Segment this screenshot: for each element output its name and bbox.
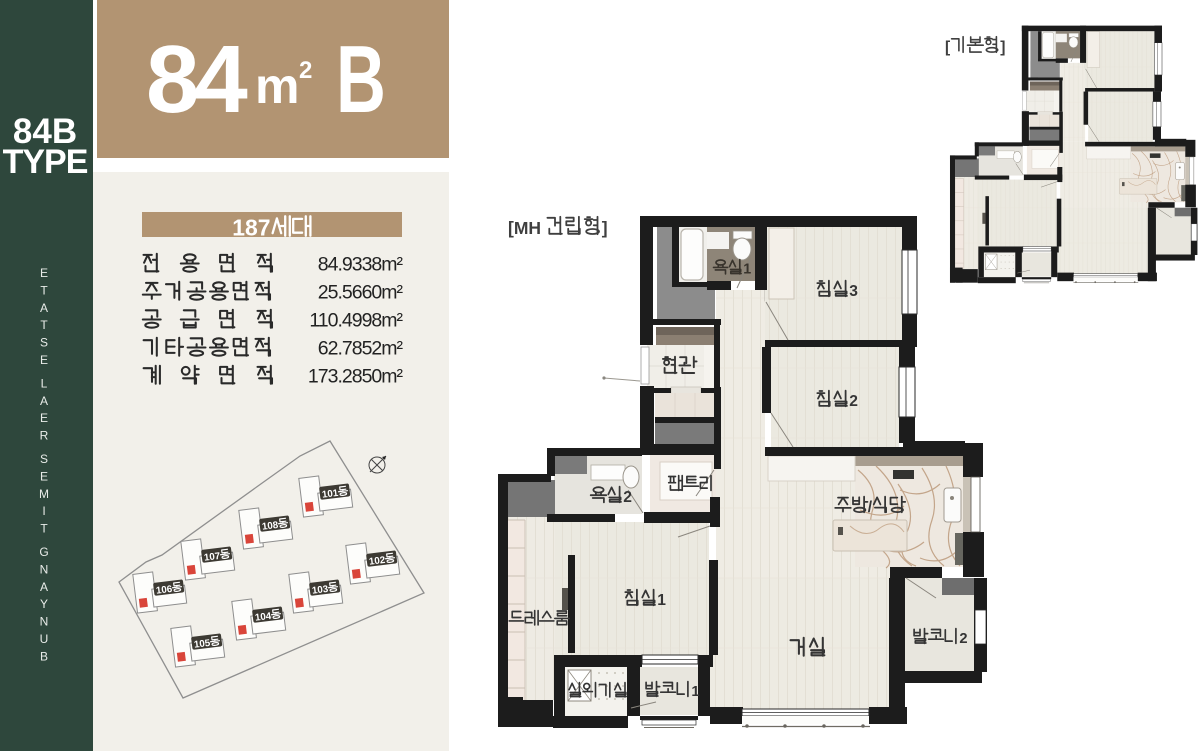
svg-text:/: / [868, 499, 873, 516]
svg-text:TYPE: TYPE [3, 143, 88, 181]
svg-text:N: N [40, 562, 49, 576]
svg-text:B: B [336, 25, 386, 133]
svg-text:A: A [40, 580, 48, 594]
svg-text:1: 1 [657, 592, 666, 609]
svg-text:A: A [40, 394, 48, 408]
svg-text:]: ] [602, 218, 608, 238]
svg-text:T: T [40, 522, 48, 536]
svg-text:107: 107 [203, 551, 221, 564]
svg-text:Y: Y [40, 597, 48, 611]
svg-text:M: M [39, 487, 49, 501]
svg-text:m: m [255, 58, 299, 114]
svg-text:S: S [40, 336, 48, 350]
svg-text:2: 2 [959, 631, 967, 647]
svg-text:2: 2 [299, 57, 312, 84]
svg-text:108: 108 [261, 520, 279, 533]
svg-text:B: B [40, 649, 48, 663]
svg-text:E: E [40, 411, 48, 425]
svg-text:T: T [40, 283, 48, 297]
svg-text:84.9338m²: 84.9338m² [318, 254, 404, 276]
svg-text:110.4998m²: 110.4998m² [309, 310, 403, 332]
svg-text:187: 187 [232, 214, 270, 240]
svg-text:A: A [40, 301, 48, 315]
svg-text:E: E [40, 266, 48, 280]
svg-text:U: U [40, 632, 49, 646]
svg-text:103: 103 [311, 584, 329, 597]
svg-text:I: I [42, 504, 45, 518]
svg-text:E: E [40, 353, 48, 367]
svg-text:L: L [41, 376, 48, 390]
svg-text:106: 106 [155, 584, 173, 597]
svg-text:101: 101 [321, 488, 339, 501]
svg-text:2: 2 [849, 393, 858, 410]
svg-text:84: 84 [146, 26, 247, 133]
svg-text:S: S [40, 452, 48, 466]
svg-text:1: 1 [691, 684, 699, 700]
svg-text:105: 105 [193, 638, 211, 651]
svg-text:104: 104 [254, 611, 272, 624]
svg-text:G: G [39, 545, 48, 559]
svg-text:[MH: [MH [508, 218, 541, 238]
svg-text:E: E [40, 469, 48, 483]
svg-text:3: 3 [849, 283, 858, 300]
svg-text:T: T [40, 318, 48, 332]
svg-text:2: 2 [623, 489, 632, 506]
svg-text:102: 102 [368, 555, 386, 568]
svg-text:N: N [40, 615, 49, 629]
svg-text:62.7852m²: 62.7852m² [318, 338, 404, 360]
svg-text:]: ] [1000, 39, 1005, 56]
svg-text:R: R [40, 429, 49, 443]
svg-text:25.5660m²: 25.5660m² [318, 282, 404, 304]
svg-text:[: [ [945, 39, 950, 56]
svg-text:173.2850m²: 173.2850m² [308, 366, 404, 388]
svg-text:1: 1 [743, 262, 751, 278]
